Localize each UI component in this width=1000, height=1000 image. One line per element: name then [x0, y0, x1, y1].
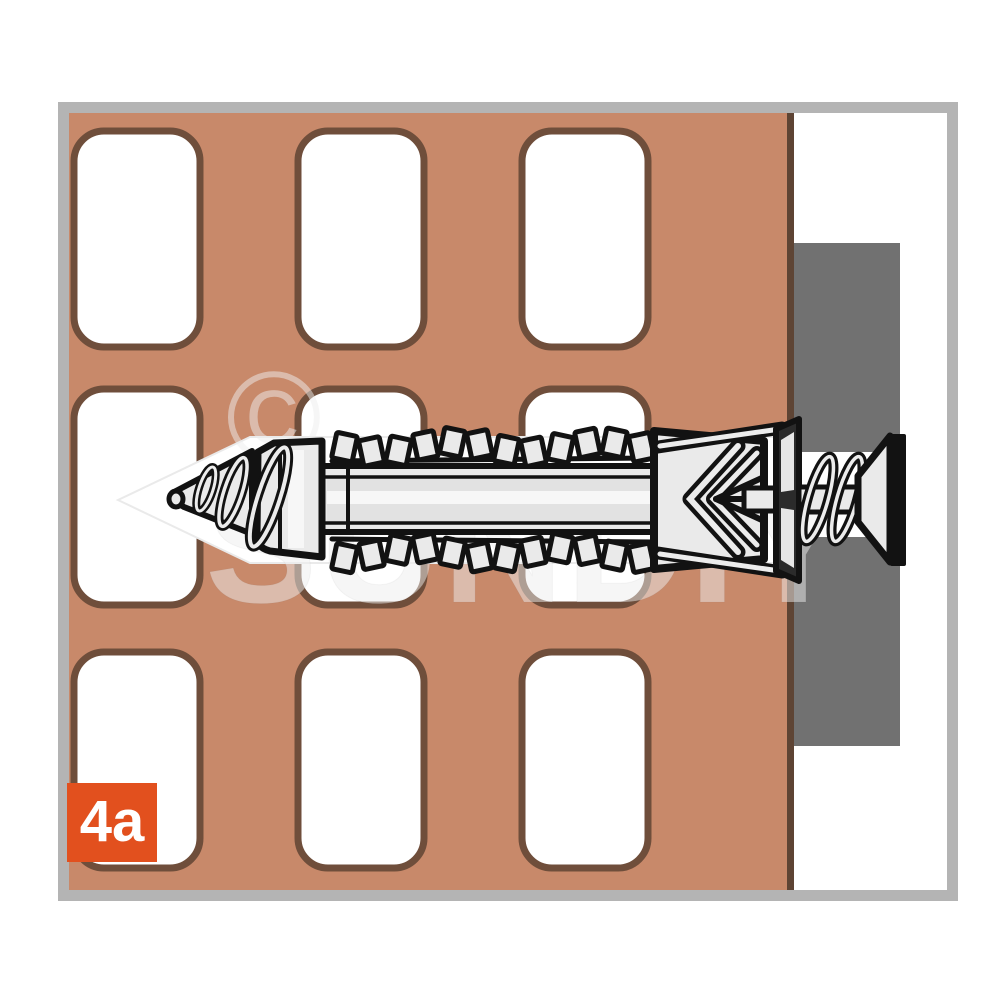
wall-plug-icon: [257, 419, 804, 581]
step-badge: 4a: [67, 783, 157, 862]
plug-flange: [776, 419, 799, 581]
illustration-stage: © SUNDIY: [0, 0, 1000, 1000]
screw-head-face: [890, 434, 906, 566]
